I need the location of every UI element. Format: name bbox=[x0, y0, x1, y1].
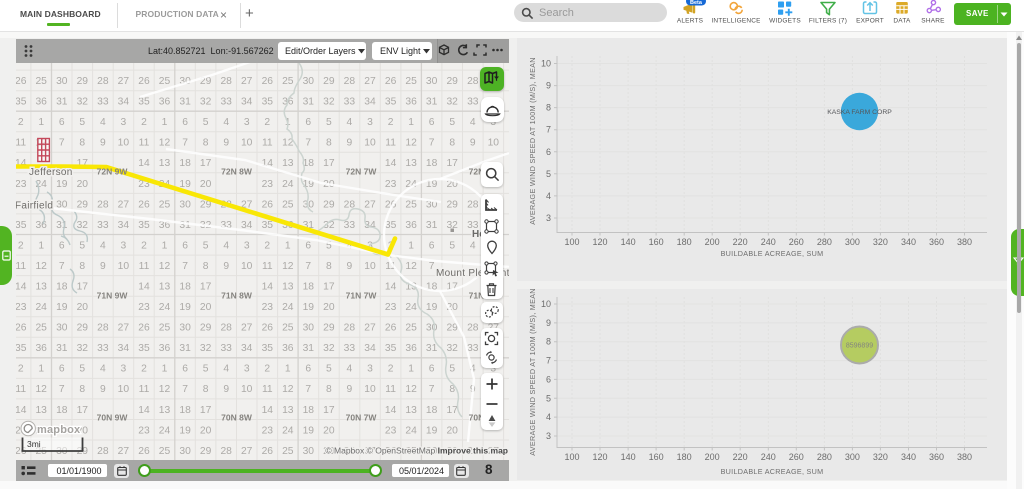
svg-text:29: 29 bbox=[77, 76, 89, 87]
svg-text:6: 6 bbox=[305, 117, 311, 128]
svg-text:18: 18 bbox=[56, 282, 68, 293]
svg-text:8: 8 bbox=[326, 384, 332, 395]
svg-text:2: 2 bbox=[264, 117, 270, 128]
svg-text:180: 180 bbox=[677, 237, 692, 247]
svg-text:30: 30 bbox=[179, 323, 191, 334]
svg-text:13: 13 bbox=[282, 405, 294, 416]
svg-text:30: 30 bbox=[426, 323, 438, 334]
svg-text:36: 36 bbox=[35, 343, 47, 354]
svg-text:4: 4 bbox=[223, 117, 229, 128]
svg-text:7: 7 bbox=[429, 384, 435, 395]
svg-text:6: 6 bbox=[546, 147, 551, 157]
svg-text:AVERAGE WIND SPEED AT 100M (M/: AVERAGE WIND SPEED AT 100M (M/S), MEAN bbox=[528, 289, 537, 456]
svg-text:KASKA FARM CORP: KASKA FARM CORP bbox=[827, 109, 892, 116]
svg-text:2: 2 bbox=[18, 117, 24, 128]
svg-text:7: 7 bbox=[546, 125, 551, 135]
svg-text:27: 27 bbox=[364, 199, 376, 210]
svg-text:26: 26 bbox=[138, 323, 150, 334]
svg-text:6: 6 bbox=[59, 364, 65, 375]
svg-text:160: 160 bbox=[649, 237, 664, 247]
svg-text:4: 4 bbox=[470, 117, 476, 128]
svg-text:28: 28 bbox=[97, 323, 109, 334]
svg-text:30: 30 bbox=[426, 76, 438, 87]
svg-text:7: 7 bbox=[546, 356, 551, 366]
svg-text:200: 200 bbox=[705, 237, 720, 247]
svg-text:70N 9W: 70N 9W bbox=[97, 413, 129, 423]
svg-text:23: 23 bbox=[16, 179, 27, 190]
svg-text:280: 280 bbox=[817, 237, 832, 247]
svg-text:3: 3 bbox=[546, 431, 551, 441]
svg-text:1: 1 bbox=[162, 240, 168, 251]
svg-text:33: 33 bbox=[220, 343, 232, 354]
svg-text:280: 280 bbox=[817, 452, 832, 462]
svg-text:8596899: 8596899 bbox=[846, 343, 873, 350]
svg-text:2: 2 bbox=[141, 117, 147, 128]
svg-text:26: 26 bbox=[16, 76, 27, 87]
svg-text:2: 2 bbox=[264, 364, 270, 375]
svg-text:4: 4 bbox=[223, 240, 229, 251]
svg-text:FILTERS (7): FILTERS (7) bbox=[809, 18, 847, 25]
svg-text:34: 34 bbox=[364, 97, 376, 108]
svg-text:12: 12 bbox=[282, 384, 294, 395]
svg-text:29: 29 bbox=[200, 446, 212, 457]
svg-text:27: 27 bbox=[118, 199, 130, 210]
svg-text:6: 6 bbox=[182, 240, 188, 251]
svg-text:31: 31 bbox=[303, 343, 315, 354]
svg-text:Beta: Beta bbox=[690, 0, 703, 6]
svg-text:1: 1 bbox=[408, 240, 414, 251]
svg-text:36: 36 bbox=[405, 343, 417, 354]
svg-text:23: 23 bbox=[16, 302, 27, 313]
svg-text:SHARE: SHARE bbox=[921, 18, 945, 25]
svg-text:29: 29 bbox=[77, 199, 89, 210]
svg-text:3: 3 bbox=[121, 364, 127, 375]
svg-text:5: 5 bbox=[79, 117, 85, 128]
svg-text:20: 20 bbox=[323, 302, 335, 313]
svg-text:12: 12 bbox=[159, 138, 171, 149]
svg-text:9: 9 bbox=[223, 138, 229, 149]
svg-text:13: 13 bbox=[282, 158, 294, 169]
svg-text:2: 2 bbox=[388, 364, 394, 375]
svg-text:11: 11 bbox=[385, 138, 396, 149]
svg-text:9: 9 bbox=[546, 318, 551, 328]
svg-text:4: 4 bbox=[100, 117, 106, 128]
svg-text:31: 31 bbox=[56, 343, 68, 354]
svg-text:27: 27 bbox=[118, 446, 130, 457]
svg-text:11: 11 bbox=[385, 384, 396, 395]
svg-text:31: 31 bbox=[426, 220, 438, 231]
svg-text:32: 32 bbox=[323, 97, 335, 108]
svg-text:24: 24 bbox=[405, 302, 417, 313]
svg-text:4: 4 bbox=[470, 240, 476, 251]
svg-text:18: 18 bbox=[426, 158, 438, 169]
svg-text:26: 26 bbox=[262, 446, 274, 457]
svg-text:3: 3 bbox=[121, 240, 127, 251]
svg-text:6: 6 bbox=[429, 117, 435, 128]
svg-text:24: 24 bbox=[282, 425, 294, 436]
svg-text:29: 29 bbox=[77, 323, 89, 334]
svg-text:18: 18 bbox=[179, 158, 191, 169]
svg-text:9: 9 bbox=[223, 384, 229, 395]
svg-text:24: 24 bbox=[35, 302, 47, 313]
svg-text:25: 25 bbox=[159, 446, 171, 457]
svg-text:71N 8W: 71N 8W bbox=[221, 291, 253, 301]
svg-text:4: 4 bbox=[546, 412, 551, 422]
svg-text:7: 7 bbox=[182, 261, 188, 272]
svg-text:20: 20 bbox=[77, 179, 89, 190]
svg-text:7: 7 bbox=[429, 261, 435, 272]
svg-text:2: 2 bbox=[141, 364, 147, 375]
svg-text:9: 9 bbox=[100, 138, 106, 149]
svg-text:33: 33 bbox=[220, 97, 232, 108]
svg-text:160: 160 bbox=[649, 452, 664, 462]
svg-text:32: 32 bbox=[200, 97, 212, 108]
svg-text:10: 10 bbox=[241, 261, 253, 272]
svg-text:30: 30 bbox=[303, 323, 315, 334]
svg-text:6: 6 bbox=[305, 364, 311, 375]
svg-text:25: 25 bbox=[159, 199, 171, 210]
svg-text:13: 13 bbox=[159, 158, 171, 169]
svg-text:17: 17 bbox=[323, 158, 335, 169]
svg-text:29: 29 bbox=[446, 76, 458, 87]
svg-text:8: 8 bbox=[79, 384, 85, 395]
svg-text:17: 17 bbox=[446, 158, 458, 169]
svg-text:14: 14 bbox=[16, 405, 27, 416]
svg-text:7: 7 bbox=[429, 138, 435, 149]
svg-text:18: 18 bbox=[303, 282, 315, 293]
svg-text:31: 31 bbox=[56, 220, 68, 231]
svg-text:32: 32 bbox=[323, 343, 335, 354]
svg-text:30: 30 bbox=[303, 76, 315, 87]
svg-text:8: 8 bbox=[546, 103, 551, 113]
svg-text:300: 300 bbox=[845, 237, 860, 247]
svg-text:25: 25 bbox=[159, 323, 171, 334]
svg-text:27: 27 bbox=[118, 76, 130, 87]
svg-text:24: 24 bbox=[405, 425, 417, 436]
svg-text:12: 12 bbox=[35, 384, 47, 395]
svg-text:26: 26 bbox=[262, 76, 274, 87]
svg-text:12: 12 bbox=[405, 261, 417, 272]
svg-text:70N 8W: 70N 8W bbox=[221, 413, 253, 423]
svg-text:20: 20 bbox=[200, 179, 212, 190]
svg-text:26: 26 bbox=[138, 446, 150, 457]
svg-text:23: 23 bbox=[138, 425, 150, 436]
svg-text:11: 11 bbox=[139, 261, 150, 272]
svg-text:5: 5 bbox=[546, 393, 551, 403]
svg-text:2: 2 bbox=[18, 364, 24, 375]
svg-text:12: 12 bbox=[405, 384, 417, 395]
svg-text:1: 1 bbox=[38, 240, 44, 251]
svg-text:4: 4 bbox=[223, 364, 229, 375]
svg-text:7: 7 bbox=[182, 384, 188, 395]
svg-text:12: 12 bbox=[405, 138, 417, 149]
svg-text:28: 28 bbox=[344, 323, 356, 334]
svg-text:29: 29 bbox=[446, 199, 458, 210]
svg-text:13: 13 bbox=[159, 405, 171, 416]
svg-text:11: 11 bbox=[16, 384, 26, 395]
svg-text:10: 10 bbox=[541, 299, 551, 309]
svg-text:12: 12 bbox=[159, 384, 171, 395]
svg-text:6: 6 bbox=[546, 374, 551, 384]
svg-text:29: 29 bbox=[323, 323, 335, 334]
svg-text:11: 11 bbox=[139, 138, 150, 149]
svg-text:11: 11 bbox=[262, 261, 273, 272]
svg-text:5: 5 bbox=[546, 169, 551, 179]
svg-text:28: 28 bbox=[97, 199, 109, 210]
svg-text:14: 14 bbox=[262, 405, 274, 416]
svg-text:36: 36 bbox=[159, 343, 171, 354]
svg-text:30: 30 bbox=[179, 446, 191, 457]
svg-text:14: 14 bbox=[385, 282, 397, 293]
svg-text:9: 9 bbox=[347, 138, 353, 149]
svg-text:9: 9 bbox=[347, 261, 353, 272]
svg-text:14: 14 bbox=[138, 158, 150, 169]
svg-text:1: 1 bbox=[408, 117, 414, 128]
svg-text:25: 25 bbox=[405, 323, 417, 334]
svg-text:36: 36 bbox=[405, 220, 417, 231]
svg-text:8: 8 bbox=[449, 138, 455, 149]
svg-text:380: 380 bbox=[957, 452, 972, 462]
svg-text:33: 33 bbox=[467, 97, 479, 108]
svg-text:2: 2 bbox=[141, 240, 147, 251]
svg-text:35: 35 bbox=[138, 220, 150, 231]
svg-text:3mi: 3mi bbox=[27, 439, 41, 449]
svg-text:72N 9W: 72N 9W bbox=[97, 167, 129, 177]
svg-text:23: 23 bbox=[385, 302, 397, 313]
svg-text:27: 27 bbox=[118, 323, 130, 334]
svg-text:17: 17 bbox=[323, 282, 335, 293]
svg-text:6: 6 bbox=[59, 240, 65, 251]
svg-text:33: 33 bbox=[97, 97, 109, 108]
svg-text:31: 31 bbox=[179, 220, 191, 231]
svg-text:6: 6 bbox=[429, 240, 435, 251]
svg-text:25: 25 bbox=[405, 76, 417, 87]
svg-text:320: 320 bbox=[873, 452, 888, 462]
svg-text:28: 28 bbox=[467, 323, 479, 334]
svg-text:17: 17 bbox=[200, 158, 212, 169]
svg-text:10: 10 bbox=[118, 138, 130, 149]
svg-text:28: 28 bbox=[467, 76, 479, 87]
svg-text:BUILDABLE ACREAGE, SUM: BUILDABLE ACREAGE, SUM bbox=[721, 467, 824, 476]
svg-text:9: 9 bbox=[223, 261, 229, 272]
svg-text:3: 3 bbox=[244, 117, 250, 128]
svg-text:28: 28 bbox=[344, 76, 356, 87]
svg-text:26: 26 bbox=[385, 76, 397, 87]
svg-text:9: 9 bbox=[100, 384, 106, 395]
svg-text:18: 18 bbox=[426, 405, 438, 416]
svg-text:13: 13 bbox=[405, 405, 417, 416]
svg-text:26: 26 bbox=[16, 323, 27, 334]
svg-text:6: 6 bbox=[429, 364, 435, 375]
svg-text:19: 19 bbox=[303, 302, 315, 313]
svg-text:33: 33 bbox=[344, 343, 356, 354]
svg-text:35: 35 bbox=[385, 343, 397, 354]
svg-text:1: 1 bbox=[38, 117, 44, 128]
svg-text:8: 8 bbox=[79, 138, 85, 149]
svg-text:AVERAGE WIND SPEED AT 100M (M/: AVERAGE WIND SPEED AT 100M (M/S), MEAN bbox=[528, 57, 537, 225]
svg-text:31: 31 bbox=[179, 343, 191, 354]
svg-text:220: 220 bbox=[733, 452, 748, 462]
svg-text:25: 25 bbox=[282, 323, 294, 334]
svg-text:24: 24 bbox=[159, 425, 171, 436]
svg-text:17: 17 bbox=[200, 282, 212, 293]
svg-text:18: 18 bbox=[303, 405, 315, 416]
svg-text:19: 19 bbox=[179, 425, 191, 436]
svg-text:13: 13 bbox=[405, 158, 417, 169]
svg-text:5: 5 bbox=[326, 364, 332, 375]
svg-text:7: 7 bbox=[305, 384, 311, 395]
svg-text:4: 4 bbox=[546, 191, 551, 201]
svg-text:9: 9 bbox=[347, 384, 353, 395]
svg-text:10: 10 bbox=[488, 138, 500, 149]
svg-text:7: 7 bbox=[182, 138, 188, 149]
svg-text:mapbox: mapbox bbox=[37, 424, 81, 436]
svg-text:20: 20 bbox=[323, 425, 335, 436]
svg-text:32: 32 bbox=[446, 343, 458, 354]
svg-text:32: 32 bbox=[77, 97, 89, 108]
svg-text:70N 7W: 70N 7W bbox=[346, 413, 378, 423]
svg-text:4: 4 bbox=[347, 117, 353, 128]
svg-text:35: 35 bbox=[262, 220, 274, 231]
svg-text:28: 28 bbox=[467, 199, 479, 210]
svg-text:36: 36 bbox=[35, 97, 47, 108]
svg-text:29: 29 bbox=[323, 76, 335, 87]
svg-text:72N 7W: 72N 7W bbox=[346, 167, 378, 177]
svg-text:36: 36 bbox=[159, 97, 171, 108]
svg-text:33: 33 bbox=[344, 97, 356, 108]
svg-text:26: 26 bbox=[262, 199, 274, 210]
svg-text:25: 25 bbox=[35, 76, 47, 87]
svg-text:11: 11 bbox=[16, 138, 26, 149]
svg-text:260: 260 bbox=[789, 237, 804, 247]
svg-text:12: 12 bbox=[282, 261, 294, 272]
svg-text:33: 33 bbox=[344, 220, 356, 231]
svg-text:27: 27 bbox=[241, 323, 253, 334]
svg-text:WIDGETS: WIDGETS bbox=[769, 18, 801, 25]
svg-text:30: 30 bbox=[179, 199, 191, 210]
svg-text:120: 120 bbox=[592, 452, 607, 462]
svg-text:5: 5 bbox=[326, 117, 332, 128]
svg-text:360: 360 bbox=[929, 237, 944, 247]
svg-text:14: 14 bbox=[138, 282, 150, 293]
svg-text:3: 3 bbox=[546, 213, 551, 223]
svg-text:25: 25 bbox=[282, 446, 294, 457]
svg-text:35: 35 bbox=[138, 343, 150, 354]
svg-text:35: 35 bbox=[262, 343, 274, 354]
svg-text:32: 32 bbox=[77, 220, 89, 231]
svg-text:1: 1 bbox=[285, 240, 291, 251]
svg-text:8: 8 bbox=[79, 261, 85, 272]
svg-text:28: 28 bbox=[220, 446, 232, 457]
svg-text:INTELLIGENCE: INTELLIGENCE bbox=[712, 18, 760, 25]
svg-text:20: 20 bbox=[446, 425, 458, 436]
svg-text:9: 9 bbox=[470, 138, 476, 149]
svg-text:26: 26 bbox=[138, 76, 150, 87]
svg-text:340: 340 bbox=[901, 452, 916, 462]
svg-text:4: 4 bbox=[100, 240, 106, 251]
svg-text:10: 10 bbox=[241, 384, 253, 395]
svg-text:11: 11 bbox=[139, 384, 150, 395]
svg-text:23: 23 bbox=[262, 302, 274, 313]
svg-text:© Mapbox © OpenStreetMap Impro: © Mapbox © OpenStreetMap Improve this ma… bbox=[325, 446, 508, 456]
svg-text:17: 17 bbox=[77, 405, 89, 416]
svg-text:36: 36 bbox=[282, 343, 294, 354]
svg-text:32: 32 bbox=[200, 343, 212, 354]
svg-text:25: 25 bbox=[282, 76, 294, 87]
svg-text:11: 11 bbox=[262, 138, 273, 149]
svg-text:7: 7 bbox=[305, 261, 311, 272]
svg-text:100: 100 bbox=[564, 237, 579, 247]
svg-text:6: 6 bbox=[305, 240, 311, 251]
svg-text:33: 33 bbox=[97, 220, 109, 231]
svg-text:8: 8 bbox=[203, 138, 209, 149]
svg-text:27: 27 bbox=[241, 76, 253, 87]
svg-text:200: 200 bbox=[705, 452, 720, 462]
svg-text:3: 3 bbox=[367, 364, 373, 375]
svg-text:30: 30 bbox=[303, 446, 315, 457]
svg-text:71N 9W: 71N 9W bbox=[97, 291, 129, 301]
svg-text:34: 34 bbox=[118, 97, 130, 108]
svg-text:19: 19 bbox=[426, 425, 438, 436]
svg-text:3: 3 bbox=[244, 240, 250, 251]
svg-text:24: 24 bbox=[282, 179, 294, 190]
svg-text:6: 6 bbox=[182, 117, 188, 128]
svg-text:32: 32 bbox=[446, 97, 458, 108]
svg-text:14: 14 bbox=[385, 158, 397, 169]
svg-text:25: 25 bbox=[159, 76, 171, 87]
svg-text:29: 29 bbox=[323, 199, 335, 210]
svg-text:17: 17 bbox=[446, 405, 458, 416]
svg-text:7: 7 bbox=[59, 261, 65, 272]
svg-text:2: 2 bbox=[388, 117, 394, 128]
svg-text:23: 23 bbox=[385, 179, 397, 190]
svg-text:19: 19 bbox=[426, 302, 438, 313]
svg-text:13: 13 bbox=[159, 282, 171, 293]
svg-text:DATA: DATA bbox=[893, 18, 911, 25]
svg-text:14: 14 bbox=[138, 405, 150, 416]
svg-text:BUILDABLE ACREAGE, SUM: BUILDABLE ACREAGE, SUM bbox=[721, 249, 824, 258]
svg-text:10: 10 bbox=[241, 138, 253, 149]
svg-text:71N 7W: 71N 7W bbox=[346, 291, 378, 301]
svg-text:10: 10 bbox=[364, 384, 376, 395]
svg-text:1: 1 bbox=[285, 364, 291, 375]
svg-text:100: 100 bbox=[564, 452, 579, 462]
svg-text:28: 28 bbox=[220, 323, 232, 334]
svg-text:23: 23 bbox=[262, 179, 274, 190]
svg-text:5: 5 bbox=[449, 117, 455, 128]
svg-text:18: 18 bbox=[56, 405, 68, 416]
svg-text:6: 6 bbox=[59, 117, 65, 128]
svg-text:28: 28 bbox=[220, 76, 232, 87]
svg-text:5: 5 bbox=[203, 117, 209, 128]
svg-text:10: 10 bbox=[364, 261, 376, 272]
svg-text:24: 24 bbox=[282, 302, 294, 313]
svg-text:9: 9 bbox=[100, 261, 106, 272]
svg-text:3: 3 bbox=[121, 117, 127, 128]
svg-text:140: 140 bbox=[621, 237, 636, 247]
svg-text:4: 4 bbox=[100, 364, 106, 375]
svg-text:13: 13 bbox=[35, 282, 47, 293]
svg-text:72N 8W: 72N 8W bbox=[221, 167, 253, 177]
svg-text:31: 31 bbox=[179, 97, 191, 108]
svg-text:10: 10 bbox=[541, 59, 551, 69]
svg-text:320: 320 bbox=[873, 237, 888, 247]
svg-text:35: 35 bbox=[16, 220, 27, 231]
svg-text:1: 1 bbox=[408, 364, 414, 375]
svg-text:23: 23 bbox=[385, 425, 397, 436]
svg-text:5: 5 bbox=[203, 240, 209, 251]
svg-text:7: 7 bbox=[59, 384, 65, 395]
